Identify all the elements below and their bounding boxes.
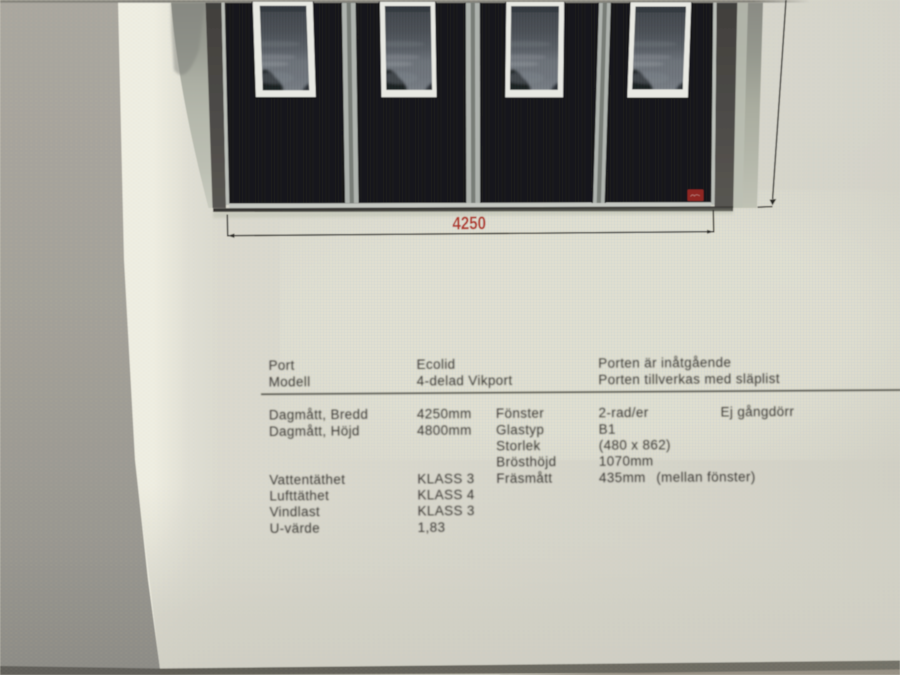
svg-text:Dagmått, Bredd: Dagmått, Bredd — [269, 407, 369, 423]
svg-text:Storlek: Storlek — [496, 438, 541, 453]
svg-text:4800mm: 4800mm — [417, 423, 472, 438]
svg-text:KLASS 4: KLASS 4 — [417, 487, 474, 502]
svg-text:U-värde: U-värde — [270, 521, 321, 536]
svg-text:Brösthöjd: Brösthöjd — [496, 454, 556, 469]
svg-text:1,83: 1,83 — [418, 520, 446, 535]
svg-text:Port: Port — [268, 358, 294, 373]
svg-text:4-delad Vikport: 4-delad Vikport — [417, 373, 513, 389]
svg-text:4250mm: 4250mm — [417, 406, 472, 421]
svg-text:Fräsmått: Fräsmått — [496, 471, 552, 486]
svg-text:Porten är inåtgående: Porten är inåtgående — [598, 355, 731, 371]
svg-text:(480 x 862): (480 x 862) — [599, 437, 671, 452]
svg-text:Ej gångdörr: Ej gångdörr — [720, 404, 794, 419]
svg-text:(mellan fönster): (mellan fönster) — [656, 469, 755, 485]
svg-text:Dagmått, Höjd: Dagmått, Höjd — [269, 423, 360, 439]
svg-text:Ecolid: Ecolid — [417, 357, 456, 372]
svg-text:B1: B1 — [599, 422, 616, 437]
svg-text:Fönster: Fönster — [496, 406, 544, 421]
svg-text:KLASS 3: KLASS 3 — [418, 503, 475, 518]
svg-text:Modell: Modell — [269, 374, 311, 389]
svg-text:1070mm: 1070mm — [599, 454, 654, 469]
svg-text:2-rad/er: 2-rad/er — [598, 405, 648, 420]
svg-text:KLASS 3: KLASS 3 — [417, 471, 474, 486]
svg-text:Porten tillverkas med släplist: Porten tillverkas med släplist — [598, 371, 780, 387]
svg-text:Vindlast: Vindlast — [269, 504, 320, 519]
svg-text:Lufttäthet: Lufttäthet — [269, 488, 329, 503]
svg-text:435mm: 435mm — [599, 470, 646, 485]
svg-text:Vattentäthet: Vattentäthet — [269, 472, 345, 488]
svg-text:4250: 4250 — [452, 213, 486, 233]
svg-text:Glastyp: Glastyp — [496, 422, 544, 437]
